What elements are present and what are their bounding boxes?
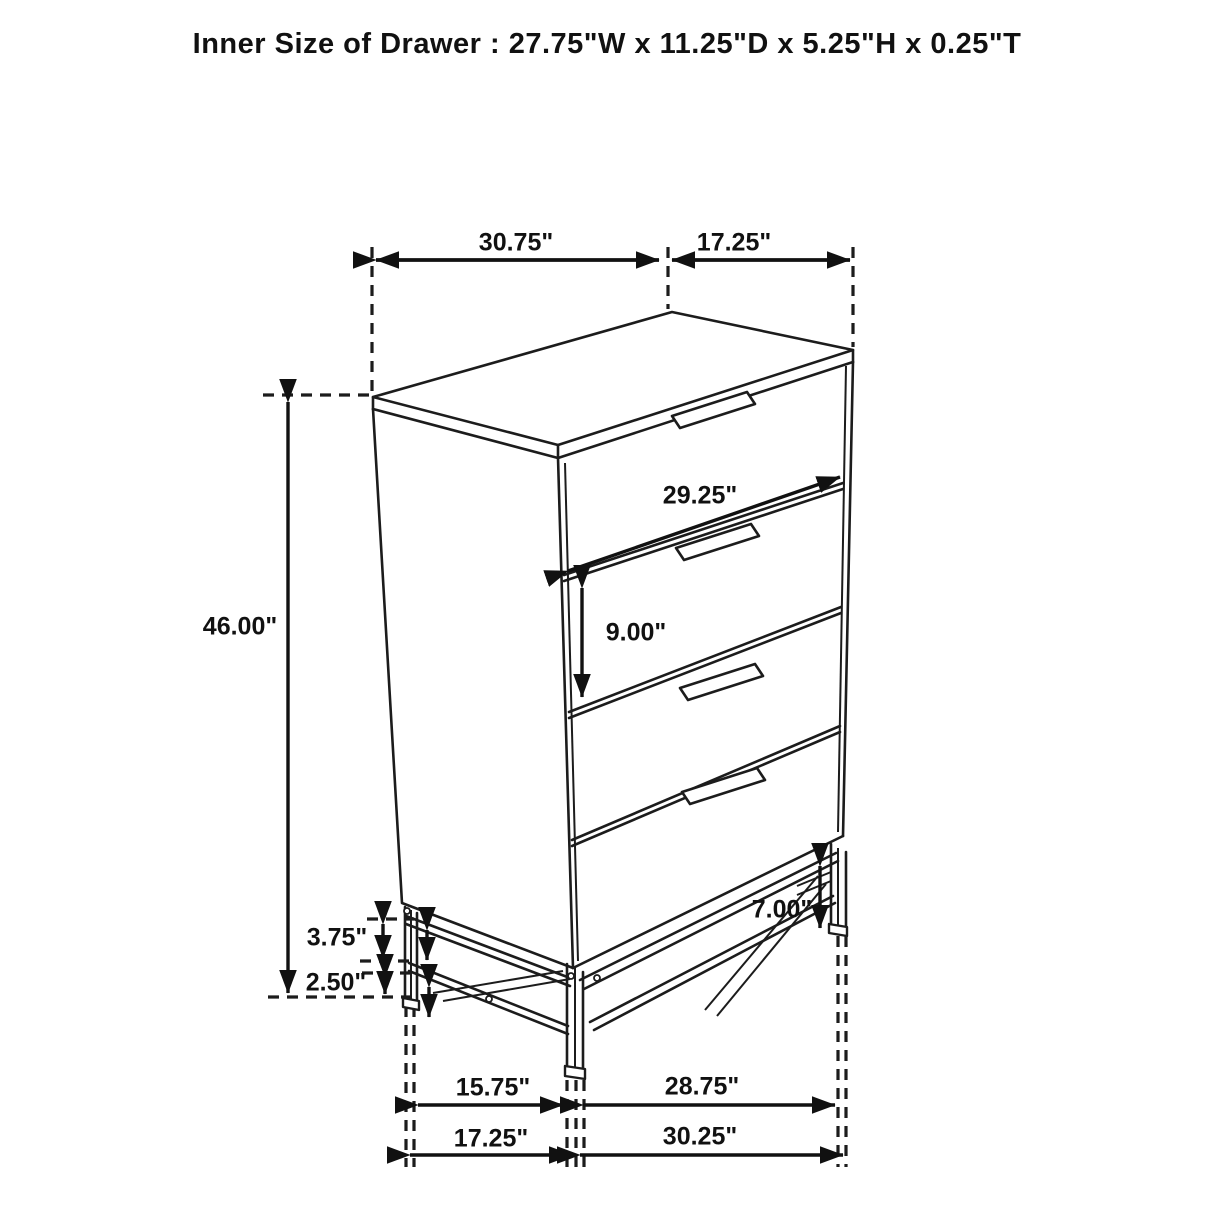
drawer-4-handle bbox=[682, 768, 765, 804]
dim-label-base-outer-side: 17.25" bbox=[454, 1125, 528, 1154]
dimension-diagram-page: Inner Size of Drawer : 27.75"W x 11.25"D… bbox=[0, 0, 1214, 1214]
dim-label-base-inner-side: 15.75" bbox=[456, 1074, 530, 1103]
dim-label-drawer-width: 29.25" bbox=[663, 482, 737, 511]
base-frame bbox=[403, 844, 847, 1079]
chest-diagram-linework bbox=[0, 0, 1214, 1214]
dim-label-top-width: 30.75" bbox=[479, 229, 553, 258]
dim-label-drawer-height: 9.00" bbox=[606, 619, 667, 648]
dim-label-base-outer-front: 30.25" bbox=[663, 1123, 737, 1152]
drawer-handles bbox=[672, 392, 765, 804]
dim-label-overall-height: 46.00" bbox=[203, 613, 277, 642]
dim-label-top-depth: 17.25" bbox=[697, 229, 771, 258]
dim-label-base-inner-front: 28.75" bbox=[665, 1073, 739, 1102]
dimension-arrows bbox=[288, 260, 850, 1155]
drawer-1-handle bbox=[672, 392, 755, 428]
dim-label-leg-height: 7.00" bbox=[752, 896, 813, 925]
dim-label-base-clearance: 2.50" bbox=[306, 969, 367, 998]
dim-label-base-frame-height: 3.75" bbox=[307, 924, 368, 953]
